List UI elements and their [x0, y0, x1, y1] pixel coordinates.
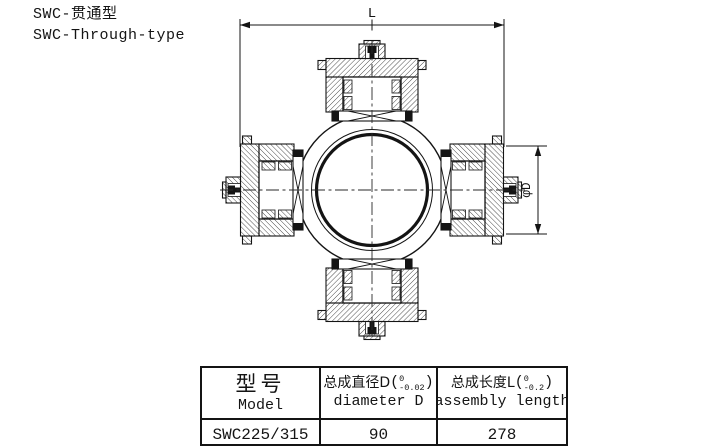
length-tolerance: 0-0.2 — [524, 375, 544, 393]
spec-table: 型号 Model 总成直径D(0-0.02) diameter D 总成长度L(… — [200, 366, 568, 446]
tolerance-paren: ( — [515, 374, 524, 393]
table-header-model: 型号 Model — [202, 368, 321, 420]
header-model-zh: 型号 — [236, 371, 286, 397]
header-diameter-en: diameter D — [333, 393, 423, 412]
header-model-en: Model — [238, 397, 283, 416]
dimension-l-label: L — [368, 6, 376, 22]
tolerance-paren: ) — [544, 374, 553, 393]
diameter-tolerance: 0-0.02 — [399, 375, 425, 393]
tolerance-paren: ) — [425, 374, 434, 393]
table-cell-model: SWC225/315 — [202, 420, 321, 446]
header-length-zh: 总成长度L — [451, 375, 515, 393]
header-length-en: assembly length — [438, 393, 566, 412]
tolerance-paren: ( — [390, 374, 399, 393]
table-cell-diameter: 90 — [321, 420, 438, 446]
dimension-phid-label: φD — [520, 182, 534, 197]
table-header-length: 总成长度L(0-0.2) assembly length — [438, 368, 566, 420]
page-background: SWC-贯通型 SWC-Through-type — [0, 0, 716, 446]
table-header-diameter: 总成直径D(0-0.02) diameter D — [321, 368, 438, 420]
table-cell-length: 278 — [438, 420, 566, 446]
header-diameter-zh: 总成直径D — [323, 375, 390, 393]
